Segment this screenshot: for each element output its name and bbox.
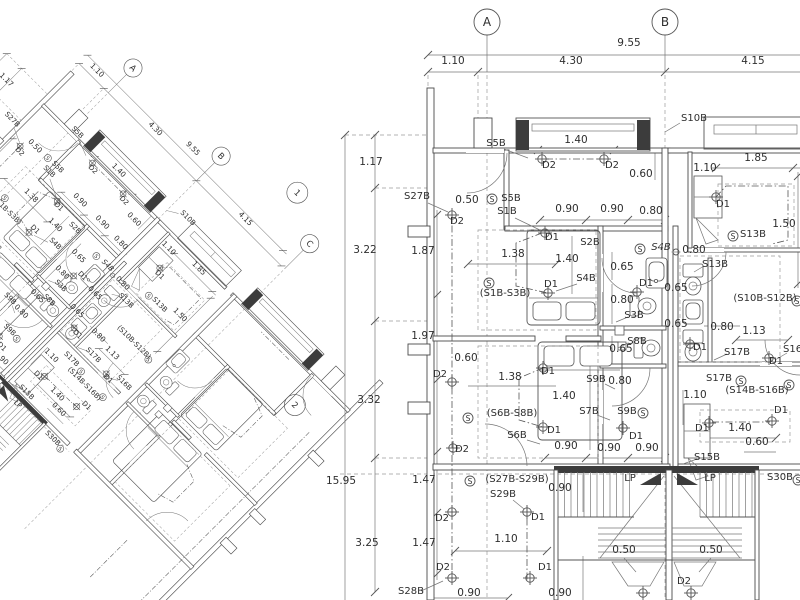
- plan-view-main: [326, 0, 800, 600]
- blueprint-canvas: SSSSSSSSSSS ABC12 9.551.104.304.151.173.…: [0, 0, 800, 600]
- plan-view-rotated-overview: [0, 0, 452, 600]
